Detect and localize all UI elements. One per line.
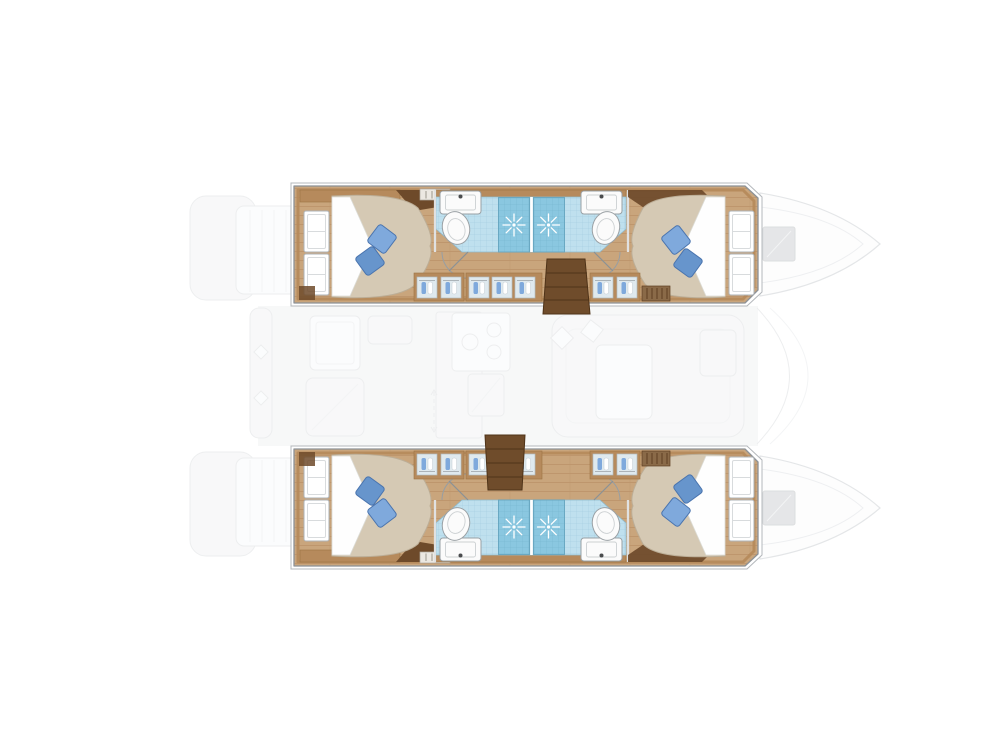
stern-platform-port	[190, 196, 302, 300]
windshield-curve	[757, 308, 790, 444]
catamaran-floorplan	[0, 0, 1007, 755]
hull-starboard	[291, 446, 762, 569]
cockpit-bench	[368, 316, 412, 344]
bow-port	[760, 193, 880, 296]
aft-crossbeam	[250, 308, 272, 438]
nav-seat	[700, 330, 736, 376]
salon-dinette	[551, 315, 744, 437]
cockpit-table	[310, 316, 360, 370]
galley-sink-unit	[452, 313, 510, 371]
salon-table	[596, 345, 652, 419]
stern-platform-starboard	[190, 452, 302, 556]
floorplan-canvas	[0, 0, 1007, 755]
stairs-starboard	[485, 435, 525, 490]
hull-port	[291, 183, 762, 306]
stairs-port	[543, 259, 590, 314]
bow-starboard	[760, 456, 880, 559]
